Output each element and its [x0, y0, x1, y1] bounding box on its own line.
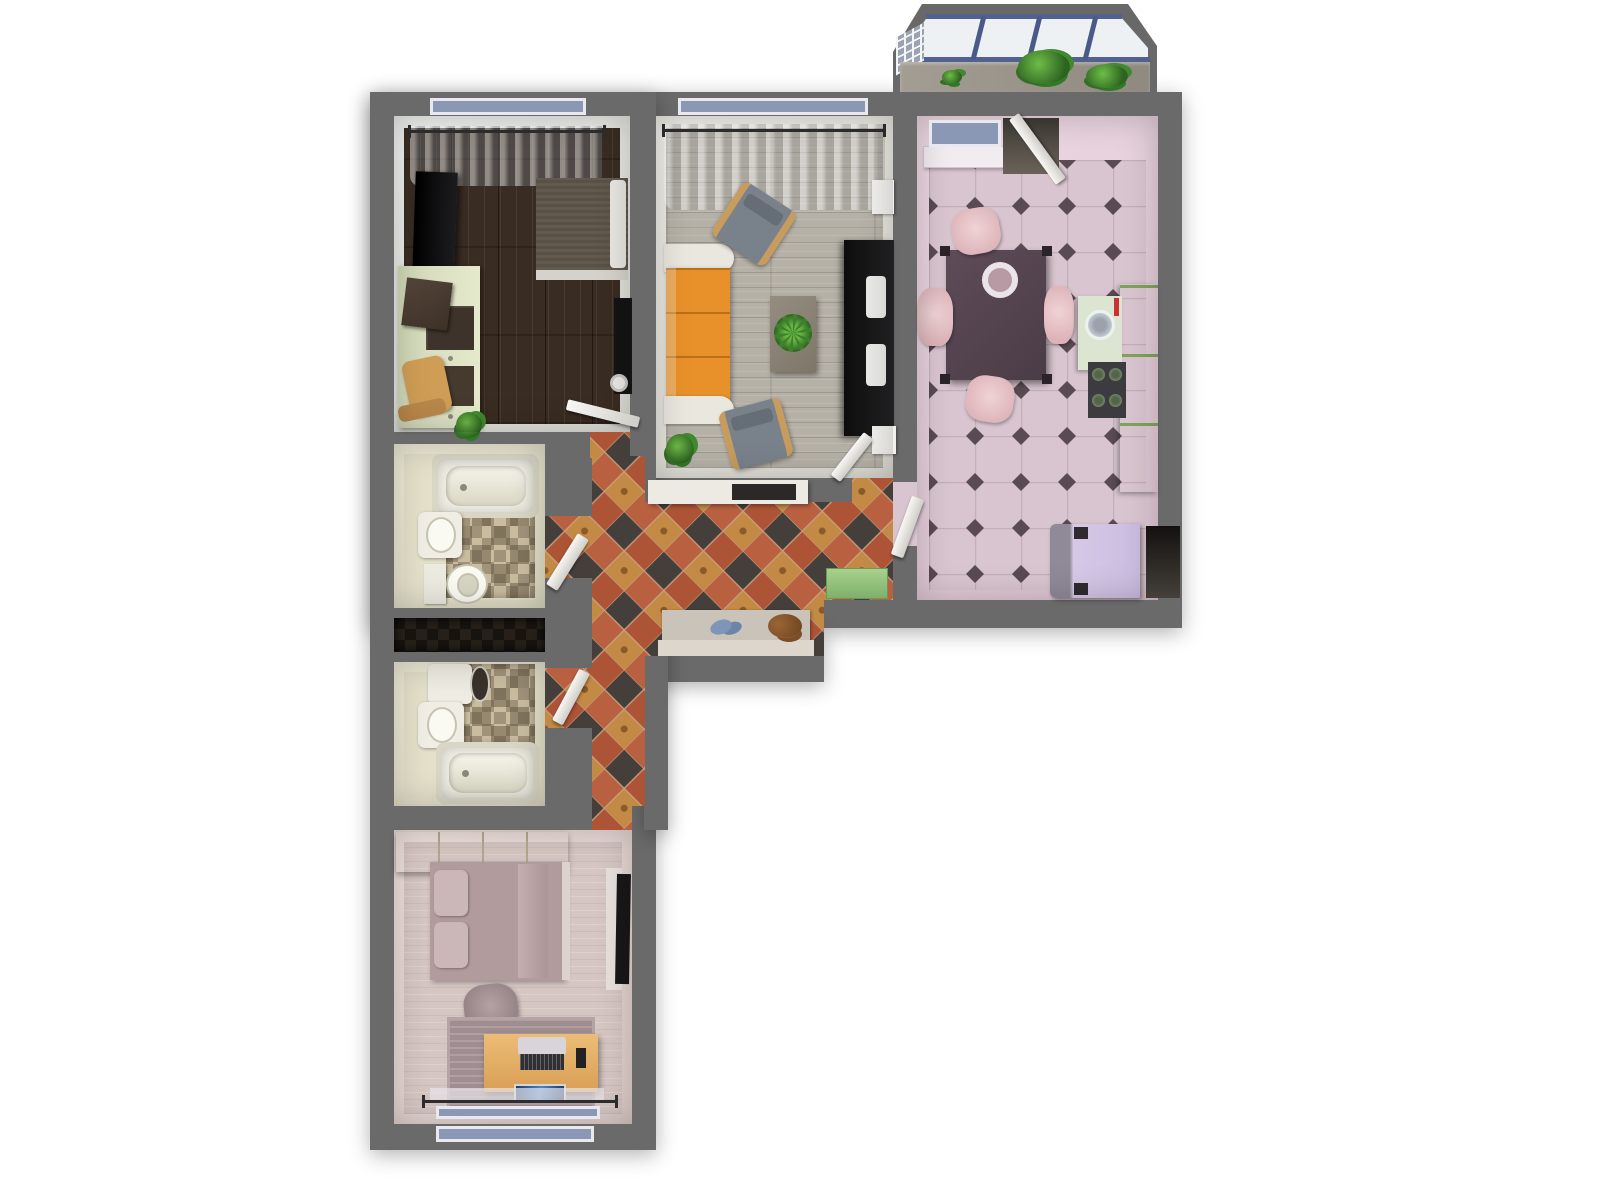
- room-hallway: [545, 432, 917, 832]
- table-plate: [982, 262, 1018, 298]
- sofa-body: [666, 268, 730, 400]
- coffee-table-plant: [774, 314, 812, 352]
- living-speaker-top: [872, 180, 894, 214]
- toilet-bowl: [446, 564, 488, 604]
- living-window: [678, 98, 868, 115]
- room-storage-niche: [394, 618, 545, 652]
- bathtub-drain: [460, 484, 467, 491]
- hallway-entrance-mat: [826, 568, 888, 599]
- desk-handle: [576, 1048, 586, 1068]
- bed-pillow: [434, 870, 468, 916]
- toilet-bowl-inner: [457, 573, 479, 597]
- room-bedroom-1: [394, 116, 630, 432]
- fridge-foot: [1074, 583, 1088, 595]
- toilet-tank: [428, 664, 472, 704]
- bedroom1-window: [430, 98, 586, 115]
- kitchen-chair-left: [917, 288, 953, 346]
- bedroom1-bed: [536, 178, 628, 282]
- room-kitchen: [917, 116, 1158, 600]
- laptop-keyboard: [520, 1054, 564, 1070]
- room-balcony: [880, 4, 1170, 92]
- bench-ledge: [658, 640, 814, 656]
- bedroom1-lamp-base: [610, 374, 628, 392]
- bedroom1-curtain-rod: [408, 130, 606, 133]
- bedroom2-window-inner: [436, 1106, 600, 1119]
- bathroom2-bathtub: [436, 742, 539, 804]
- balcony-plant-tiny: [942, 70, 962, 84]
- sideboard-knob: [448, 356, 453, 361]
- table-leg: [940, 374, 950, 384]
- kitchen-chair-right: [1044, 286, 1074, 344]
- hallway-shelf-box: [732, 484, 796, 500]
- bedroom1-tv: [412, 171, 458, 276]
- room-bathroom-1: [394, 444, 545, 608]
- kitchen-window-sill: [923, 146, 1009, 168]
- balcony-plant-large: [1018, 50, 1070, 84]
- stove-burner: [1092, 368, 1105, 381]
- kitchen-faucet-red: [1114, 298, 1119, 316]
- stove-burner: [1092, 394, 1105, 407]
- bathtub-basin: [446, 466, 526, 506]
- room-bathroom-2: [394, 662, 545, 806]
- kitchen-stove: [1088, 362, 1126, 418]
- bathroom1-sink: [418, 512, 462, 558]
- bedroom2-bed: [430, 862, 570, 980]
- sink-bowl: [427, 707, 457, 743]
- chair-back: [397, 397, 447, 423]
- bathroom1-toilet: [424, 562, 494, 606]
- bedroom1-chair: [398, 354, 448, 426]
- bedroom1-plant: [456, 412, 482, 438]
- bedroom2-window: [436, 1126, 594, 1142]
- bed-pillow: [434, 922, 468, 968]
- kitchen-fridge: [1050, 524, 1140, 598]
- living-curtain: [664, 124, 885, 210]
- sideboard-knob: [448, 414, 453, 419]
- bed-pillows: [610, 180, 626, 268]
- tv-speaker-bar: [866, 344, 886, 386]
- table-leg: [1042, 374, 1052, 384]
- table-leg: [1042, 246, 1052, 256]
- hallway-shoe-bench: [662, 610, 810, 658]
- laptop-lid: [518, 1037, 566, 1055]
- sink-bowl: [426, 517, 456, 553]
- bathroom2-toilet: [428, 664, 492, 706]
- stove-burner: [1109, 394, 1122, 407]
- kitchen-dark-niche: [1146, 526, 1180, 598]
- floor-plan-canvas: [0, 0, 1600, 1200]
- room-bedroom-2: [394, 830, 632, 1124]
- bed-frame-edge: [562, 862, 570, 980]
- bed-blanket-fold: [518, 864, 548, 978]
- kitchen-sink: [1085, 310, 1115, 340]
- table-leg: [940, 246, 950, 256]
- bathtub-drain: [462, 770, 469, 777]
- balcony-plant-small: [1086, 64, 1128, 88]
- living-curtain-rod: [662, 129, 886, 132]
- tv-speaker-bar: [866, 276, 886, 318]
- bed-footboard: [536, 270, 628, 280]
- kitchen-table: [946, 250, 1046, 380]
- stove-burner: [1109, 368, 1122, 381]
- bathroom1-bathtub: [432, 454, 539, 518]
- living-tv-unit: [844, 240, 894, 436]
- toilet-open-lid: [470, 666, 490, 702]
- toilet-tank: [424, 564, 446, 604]
- bedroom2-tv: [615, 874, 631, 984]
- bedroom1-books-stack: [401, 277, 453, 330]
- kitchen-sink-unit: [1078, 296, 1122, 370]
- room-living: [656, 116, 893, 478]
- bedroom2-curtain-rod: [422, 1100, 618, 1103]
- kitchen-window: [929, 120, 1001, 147]
- bedroom2-desk: [484, 1034, 598, 1092]
- bathtub-basin: [449, 753, 527, 793]
- fridge-foot: [1074, 527, 1088, 539]
- brown-shoes: [768, 614, 802, 638]
